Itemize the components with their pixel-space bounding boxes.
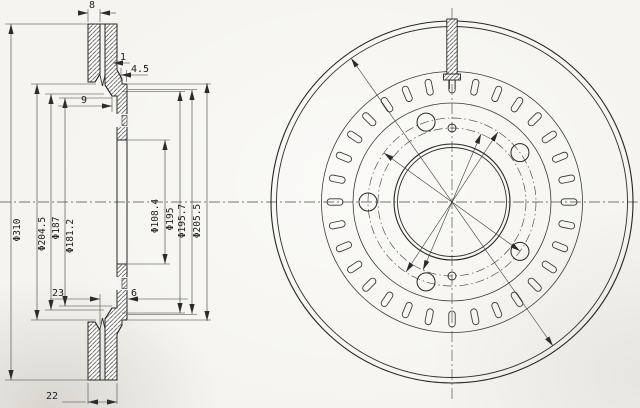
wheel-bolt-hole bbox=[417, 273, 435, 291]
vent-slot bbox=[335, 151, 352, 163]
dia-187: Φ187 bbox=[51, 217, 62, 240]
vent-slot bbox=[380, 291, 394, 308]
vent-slot bbox=[380, 96, 394, 113]
dia-310: Φ310 bbox=[12, 218, 23, 241]
dia-195: Φ195 bbox=[165, 208, 176, 231]
dim-step: 4.5 bbox=[131, 64, 149, 75]
vent-slot bbox=[361, 111, 377, 127]
vent-slot bbox=[551, 241, 568, 253]
vent-slot bbox=[558, 174, 575, 183]
vent-slot bbox=[329, 220, 346, 229]
vent-slot bbox=[510, 96, 524, 113]
dim-total-thickness: 22 bbox=[46, 391, 58, 402]
vent-slot bbox=[541, 130, 558, 144]
vent-slot bbox=[551, 151, 568, 163]
width-dimension-lines bbox=[50, 13, 188, 402]
vent-slot bbox=[424, 308, 433, 325]
dim-hub-offset: 9 bbox=[81, 95, 87, 106]
vent-slot bbox=[346, 260, 363, 274]
vent-slot bbox=[424, 79, 433, 96]
pin-circle-diameter-line bbox=[423, 134, 481, 270]
vent-slot bbox=[361, 277, 377, 293]
vent-slot bbox=[470, 79, 479, 96]
vent-slot bbox=[527, 111, 543, 127]
vent-slot bbox=[401, 301, 413, 318]
vent-slot bbox=[541, 260, 558, 274]
dia-108-4: Φ108.4 bbox=[150, 199, 161, 234]
dia-204-5: Φ204.5 bbox=[37, 217, 48, 251]
vent-slot bbox=[470, 308, 479, 325]
dim-hat-depth: 23 bbox=[52, 288, 64, 299]
vent-slot bbox=[335, 241, 352, 253]
dim-plate-width: 8 bbox=[89, 0, 95, 11]
vent-slot bbox=[491, 85, 503, 102]
vent-slot bbox=[329, 174, 346, 183]
dia-195-7: Φ195.7 bbox=[177, 204, 188, 238]
dim-flange-width: 6 bbox=[131, 288, 137, 299]
vent-slot bbox=[491, 301, 503, 318]
vent-slot bbox=[558, 220, 575, 229]
dia-205-5: Φ205.5 bbox=[192, 204, 203, 238]
top-sectioned-rib bbox=[444, 19, 461, 89]
vent-slot bbox=[527, 277, 543, 293]
scanned-technical-drawing: 8 1 4.5 9 23 6 22 Φ310 Φ204.5 Φ187 Φ181.… bbox=[0, 0, 640, 408]
vent-slot bbox=[346, 130, 363, 144]
dia-181-2: Φ181.2 bbox=[65, 219, 76, 253]
vent-slot bbox=[401, 85, 413, 102]
brake-disc-drawing: 8 1 4.5 9 23 6 22 Φ310 Φ204.5 Φ187 Φ181.… bbox=[0, 0, 640, 408]
vent-slot bbox=[510, 291, 524, 308]
dim-lip: 1 bbox=[120, 52, 126, 63]
